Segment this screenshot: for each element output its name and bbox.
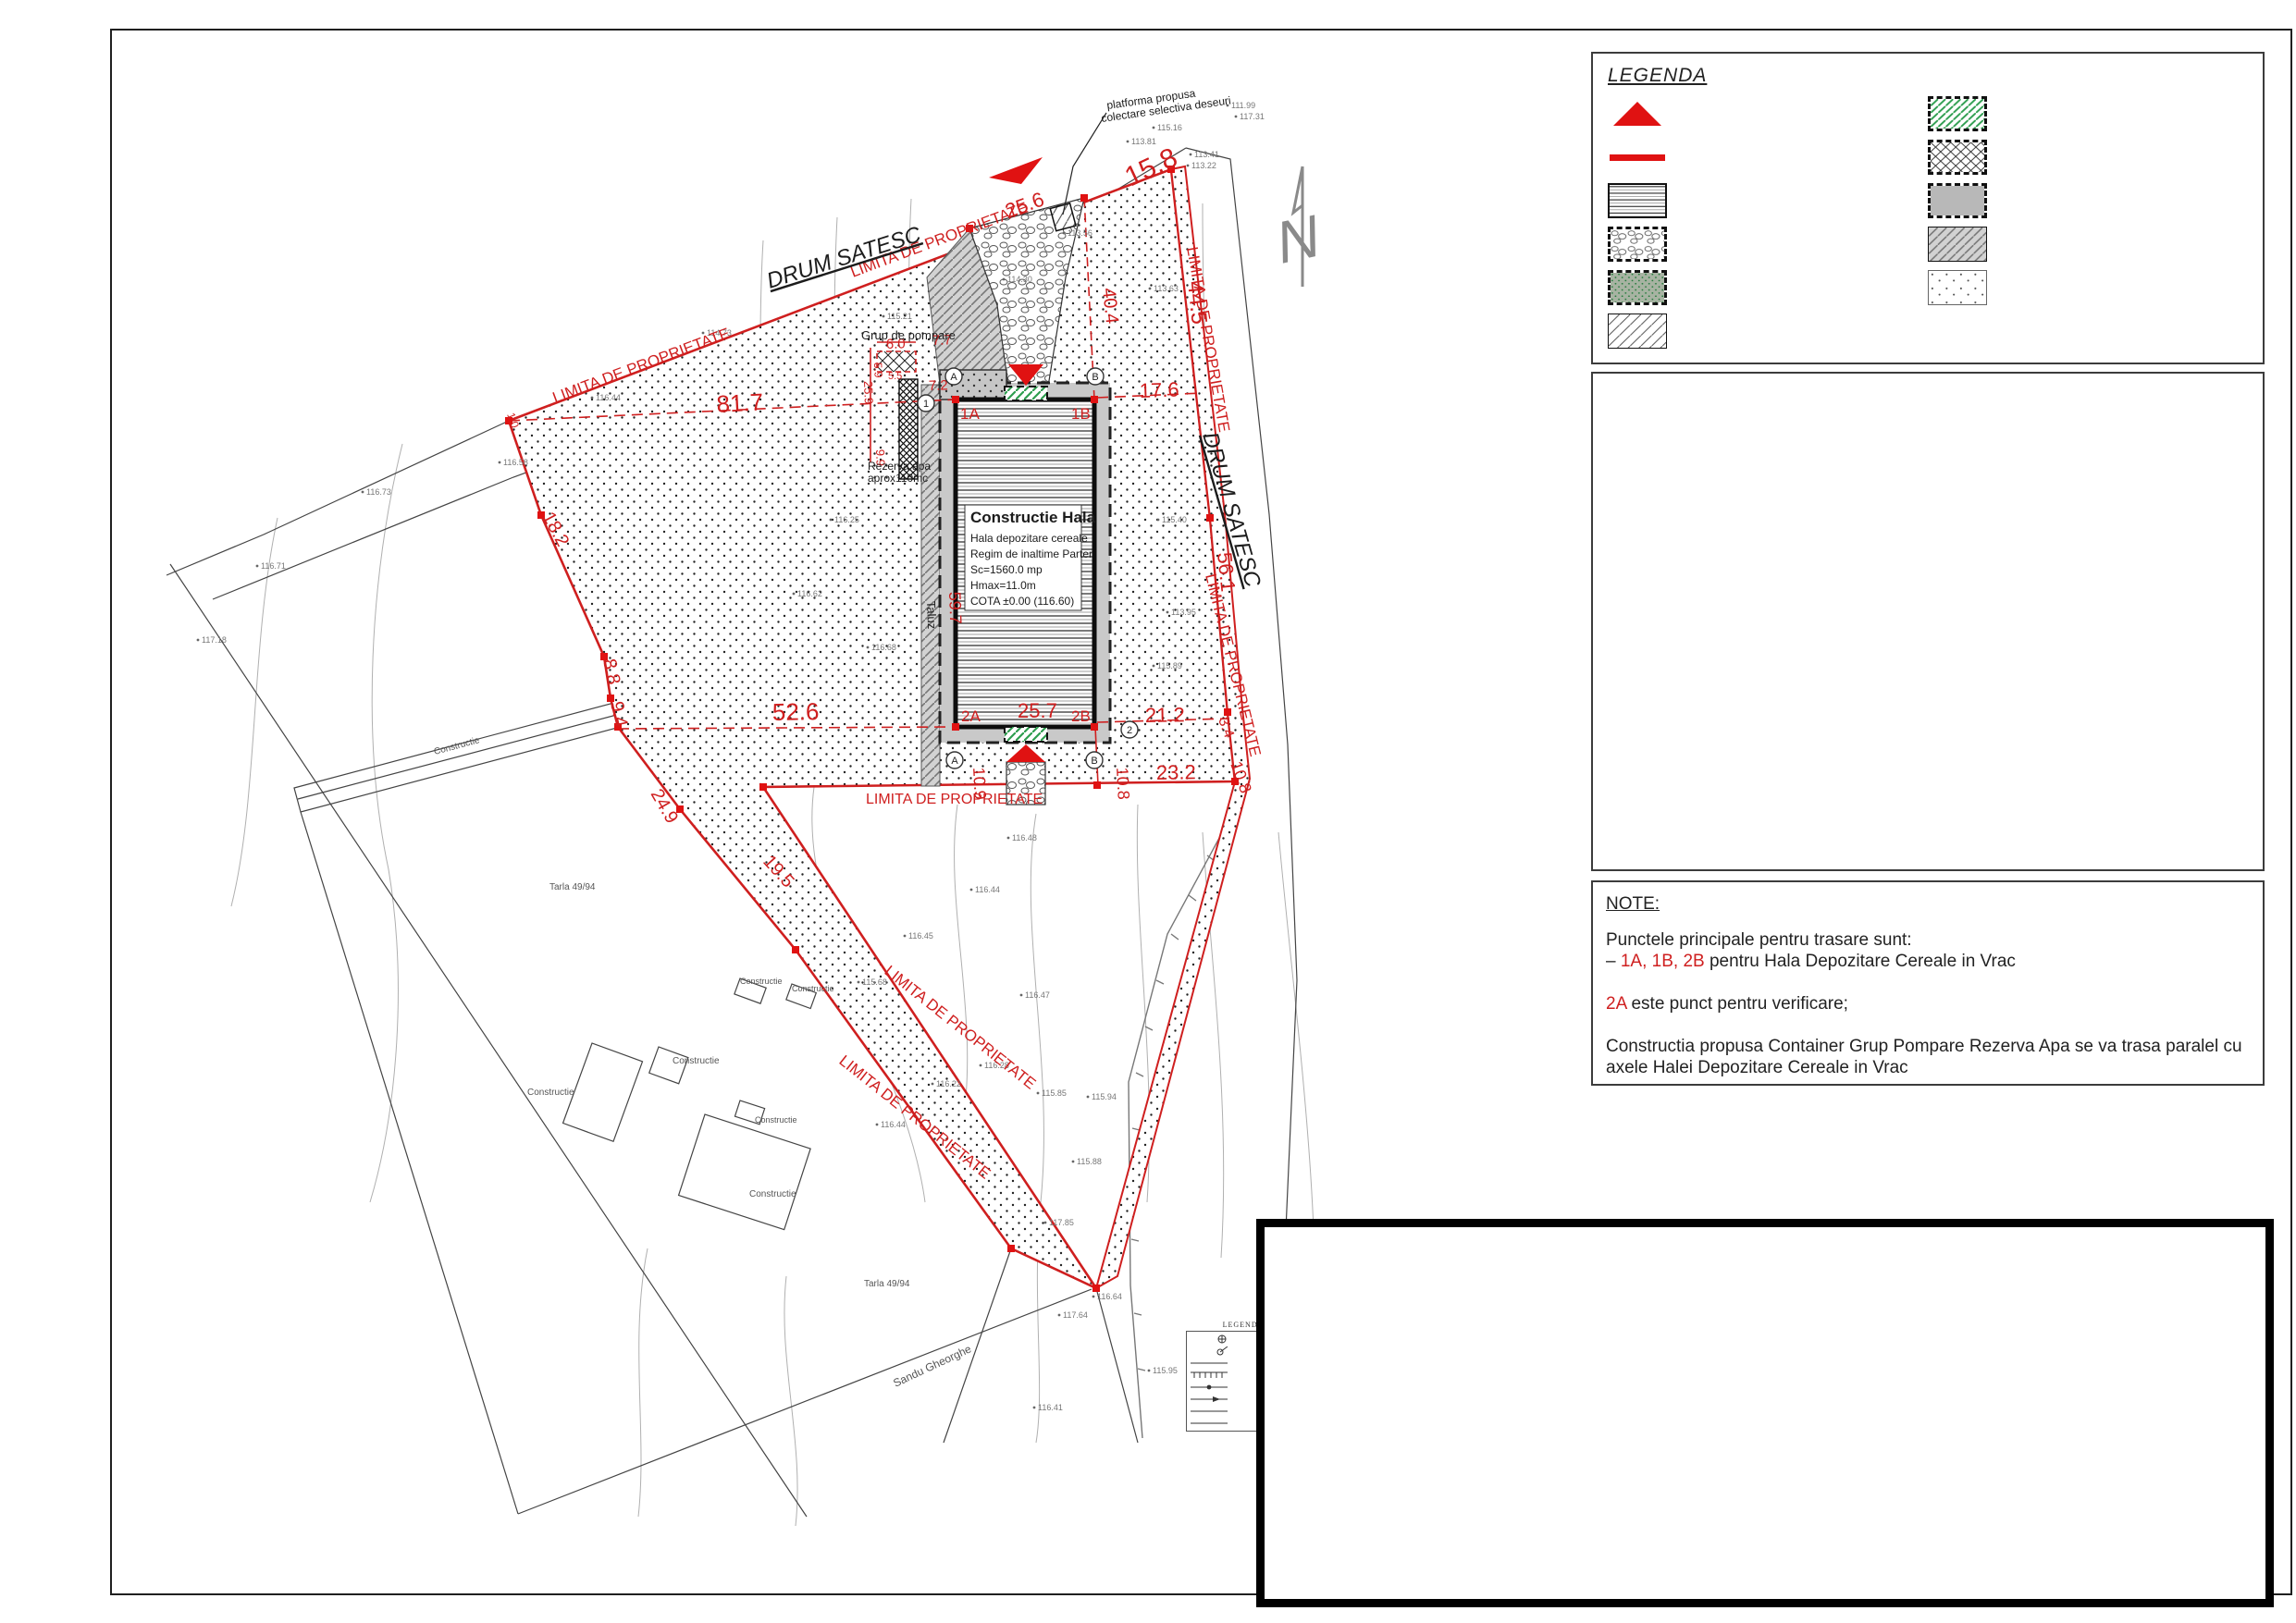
- title-block: [1256, 1219, 2274, 1607]
- elevation-label: 116.48: [1012, 833, 1037, 842]
- map-label: 59.7: [945, 591, 965, 624]
- map-label: 1B: [1071, 405, 1091, 423]
- elevation-label: 113.56: [1068, 228, 1092, 238]
- constructie-swatch-icon: [1608, 183, 1667, 218]
- trotuar-swatch-icon: [1928, 183, 1987, 218]
- note-line: [1606, 972, 2250, 993]
- legend-panel: LEGENDA: [1591, 52, 2265, 364]
- map-label: Taluz: [924, 601, 939, 630]
- elevation-label: 115.85: [1042, 1088, 1067, 1098]
- note-title: NOTE:: [1606, 893, 2250, 915]
- map-label: Sandu Gheorghe: [891, 1342, 973, 1389]
- elevation-label: 116.47: [1025, 990, 1050, 1000]
- note-line: – 1A, 1B, 2B pentru Hala Depozitare Cere…: [1606, 951, 2250, 972]
- axis-marker-label: A: [950, 372, 957, 383]
- elevation-label: 116.45: [908, 931, 933, 941]
- axis-marker-label: A: [951, 756, 958, 767]
- map-label: 7.2: [929, 377, 948, 394]
- elevation-label: 116.64: [1097, 1292, 1122, 1301]
- arrowline-symbol-icon: [1189, 1395, 1229, 1404]
- line-symbol-icon: [1189, 1419, 1229, 1428]
- map-label: Constructie: [740, 977, 783, 986]
- map-label: Constructie: [749, 1189, 796, 1199]
- map-label: 25.7: [1018, 699, 1057, 722]
- beton-acces-swatch-icon: [1928, 96, 1987, 131]
- taluz-swatch-icon: [1928, 227, 1987, 262]
- map-label: 21.2: [1145, 703, 1185, 727]
- map-label: Rezerva apa: [868, 460, 931, 473]
- legend-title: LEGENDA: [1608, 65, 2248, 87]
- map-label: Hmax=11.0m: [970, 579, 1036, 592]
- line-symbol-icon: [1189, 1407, 1229, 1416]
- elevation-label: 113.22: [1191, 161, 1216, 170]
- container-swatch-icon: [1928, 140, 1987, 175]
- map-label: 1A: [960, 405, 980, 423]
- map-label: Constructie: [792, 984, 834, 993]
- elevation-label: 116.71: [261, 561, 286, 571]
- elevation-label: 115.88: [1077, 1157, 1102, 1166]
- map-label: 23.2: [1156, 760, 1196, 784]
- axis-marker-label: 2: [1127, 725, 1132, 736]
- map-label: Regim de inaltime Parter: [970, 547, 1092, 560]
- note-line: 2A este punct pentru verificare;: [1606, 993, 2250, 1014]
- elevation-label: 114.30: [1007, 275, 1032, 284]
- line-symbol-icon: [1189, 1359, 1229, 1368]
- legend-column-left: [1608, 96, 1928, 349]
- table-spacer: [1606, 388, 2250, 416]
- legend-item: [1608, 140, 1928, 175]
- map-label: Constructie: [755, 1115, 797, 1125]
- elevation-label: 117.64: [1063, 1310, 1088, 1320]
- elevation-label: 117.85: [1049, 1218, 1074, 1227]
- table-spacer: [1606, 435, 2250, 453]
- plan-sheet: { "colors":{"accent_red":"#cf1f1f","gree…: [0, 0, 2296, 1623]
- stalp-symbol-icon: [1189, 1346, 1229, 1356]
- axis-marker-label: B: [1092, 372, 1098, 383]
- limita-swatch-icon: [1608, 140, 1667, 175]
- map-label: 2A: [961, 707, 981, 725]
- map-label: Tarla 49/94: [864, 1279, 910, 1289]
- elevation-label: 116.68: [871, 643, 896, 652]
- north-arrow: N: [1270, 166, 1327, 287]
- map-label: 8.8: [599, 657, 623, 686]
- note-line: Constructia propusa Container Grup Pompa…: [1606, 1036, 2250, 1057]
- map-label: 5.5: [888, 371, 902, 382]
- note-lines: Punctele principale pentru trasare sunt:…: [1606, 929, 2250, 1078]
- map-label: 17.6: [1139, 378, 1179, 402]
- legend-item: [1608, 314, 1928, 349]
- elevation-label: 113.81: [1131, 137, 1156, 146]
- map-label: Sc=1560.0 mp: [970, 563, 1043, 576]
- elevation-label: 115.89: [1157, 661, 1182, 670]
- map-label: Tarla 49/94: [549, 882, 596, 892]
- map-label: Hala depozitare cereale: [970, 532, 1088, 545]
- map-label: COTA ±0.00 (116.60): [970, 595, 1074, 608]
- elevation-label: 116.73: [366, 487, 391, 497]
- map-label: 2B: [1071, 707, 1091, 725]
- verde-neamenajat-swatch-icon: [1928, 270, 1987, 305]
- elevation-label: 116.62: [797, 589, 822, 598]
- elevation-label: 115.94: [1092, 1092, 1117, 1101]
- legend-item: [1928, 183, 2248, 218]
- verde-amenajat-swatch-icon: [1608, 270, 1667, 305]
- legend-item: [1608, 270, 1928, 305]
- beton-colectare-swatch-icon: [1608, 314, 1667, 349]
- legend-item: [1928, 140, 2248, 175]
- surface-table-panel: [1591, 372, 2265, 871]
- note-line: axele Halei Depozitare Cereale in Vrac: [1606, 1057, 2250, 1078]
- dotline-symbol-icon: [1189, 1383, 1229, 1392]
- elevation-label: 116.44: [881, 1120, 906, 1129]
- acces-swatch-icon: [1608, 96, 1667, 131]
- map-label: aprox110mc: [868, 472, 928, 485]
- legend-item: [1608, 227, 1928, 262]
- legend-item: [1928, 96, 2248, 131]
- legend-item: [1608, 96, 1928, 131]
- table-spacer: [1606, 416, 2250, 435]
- map-label: 81.7: [716, 387, 764, 418]
- map-label: 25.9: [861, 381, 876, 405]
- elevation-label: 117.18: [202, 635, 227, 645]
- legend-item: [1608, 183, 1928, 218]
- svg-text:N: N: [1270, 202, 1327, 276]
- pietris-swatch-icon: [1608, 227, 1667, 262]
- elevation-label: 116.41: [1038, 1403, 1063, 1412]
- map-label: 40.4: [1098, 287, 1122, 325]
- borna-symbol-icon: [1189, 1334, 1229, 1344]
- elevation-label: 115.21: [887, 312, 912, 321]
- map-label: Constructie: [527, 1088, 574, 1098]
- axis-marker-label: B: [1091, 756, 1097, 767]
- legend-item: [1928, 270, 2248, 305]
- elevation-label: 115.95: [1153, 1366, 1178, 1375]
- elevation-label: 117.31: [1240, 112, 1265, 121]
- elevation-label: 116.22: [936, 1079, 961, 1088]
- taluz-symbol-icon: [1189, 1371, 1229, 1380]
- elevation-label: 115.40: [1162, 515, 1187, 524]
- note-line: [1606, 1014, 2250, 1036]
- map-label: Constructie Hala: [970, 509, 1096, 526]
- elevation-label: 115.16: [1157, 123, 1182, 132]
- elevation-label: 113.63: [1154, 284, 1179, 293]
- elevation-label: 116.44: [975, 885, 1000, 894]
- elevation-label: 113.41: [1194, 150, 1219, 159]
- elevation-label: 116.44: [596, 393, 621, 402]
- map-label: Grup de pompare: [861, 328, 956, 342]
- axis-marker-label: 1: [923, 399, 929, 410]
- map-label: 5.9: [871, 363, 885, 378]
- elevation-label: 116.58: [503, 458, 528, 467]
- map-label: 10.8: [1113, 767, 1133, 800]
- elevation-label: 111.99: [1231, 101, 1255, 110]
- elevation-label: 113.95: [1171, 608, 1196, 617]
- note-line: Punctele principale pentru trasare sunt:: [1606, 929, 2250, 951]
- legend-item: [1928, 227, 2248, 262]
- elevation-label: 116.25: [834, 515, 859, 524]
- map-label: Constructie: [673, 1056, 720, 1066]
- map-label: 52.6: [772, 697, 820, 726]
- map-label: Constructie: [433, 735, 481, 757]
- elevation-label: 115.68: [862, 977, 887, 987]
- note-panel: NOTE: Punctele principale pentru trasare…: [1591, 880, 2265, 1086]
- map-label: LIMITA DE PROPRIETATE: [866, 792, 1043, 807]
- legend-column-right: [1928, 96, 2248, 349]
- map-label: 9.4: [606, 699, 631, 729]
